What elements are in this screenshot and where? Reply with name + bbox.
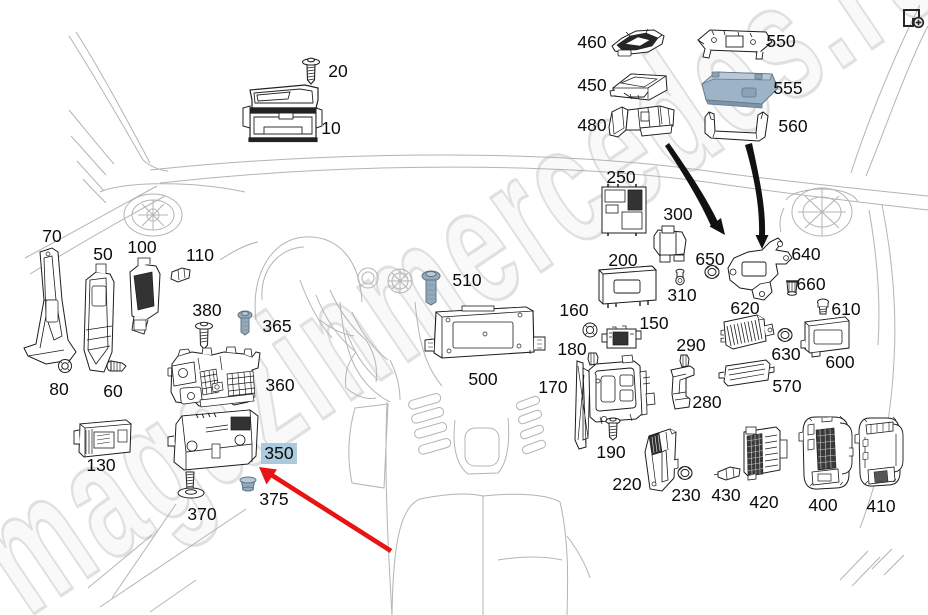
svg-text:170: 170 — [538, 377, 567, 397]
svg-text:10: 10 — [321, 118, 341, 138]
svg-text:220: 220 — [612, 474, 641, 494]
svg-text:570: 570 — [772, 376, 801, 396]
svg-text:150: 150 — [639, 313, 668, 333]
svg-text:660: 660 — [796, 274, 825, 294]
svg-text:640: 640 — [791, 244, 820, 264]
svg-text:480: 480 — [577, 115, 606, 135]
svg-text:250: 250 — [606, 167, 635, 187]
svg-text:375: 375 — [259, 489, 288, 509]
svg-text:290: 290 — [676, 335, 705, 355]
svg-text:600: 600 — [825, 352, 854, 372]
svg-text:130: 130 — [86, 455, 115, 475]
svg-text:430: 430 — [711, 485, 740, 505]
svg-text:20: 20 — [328, 61, 348, 81]
svg-text:550: 550 — [766, 31, 795, 51]
svg-text:300: 300 — [663, 204, 692, 224]
svg-text:100: 100 — [127, 237, 156, 257]
svg-text:280: 280 — [692, 392, 721, 412]
svg-text:180: 180 — [557, 339, 586, 359]
svg-text:310: 310 — [667, 285, 696, 305]
svg-text:350: 350 — [264, 443, 293, 463]
svg-text:365: 365 — [262, 316, 291, 336]
svg-text:630: 630 — [771, 344, 800, 364]
svg-text:360: 360 — [265, 375, 294, 395]
svg-text:160: 160 — [559, 300, 588, 320]
svg-text:500: 500 — [468, 369, 497, 389]
svg-text:370: 370 — [187, 504, 216, 524]
svg-text:450: 450 — [577, 75, 606, 95]
svg-text:510: 510 — [452, 270, 481, 290]
svg-text:380: 380 — [192, 300, 221, 320]
svg-text:230: 230 — [671, 485, 700, 505]
svg-text:650: 650 — [695, 249, 724, 269]
svg-text:420: 420 — [749, 492, 778, 512]
svg-text:610: 610 — [831, 299, 860, 319]
svg-text:60: 60 — [103, 381, 123, 401]
svg-text:410: 410 — [866, 496, 895, 516]
svg-text:50: 50 — [93, 244, 113, 264]
svg-text:70: 70 — [42, 226, 62, 246]
svg-text:200: 200 — [608, 250, 637, 270]
svg-text:190: 190 — [596, 442, 625, 462]
svg-text:555: 555 — [773, 78, 802, 98]
svg-text:110: 110 — [186, 245, 214, 265]
svg-text:560: 560 — [778, 116, 807, 136]
svg-text:460: 460 — [577, 32, 606, 52]
svg-text:80: 80 — [49, 379, 69, 399]
svg-text:400: 400 — [808, 495, 837, 515]
svg-text:620: 620 — [730, 298, 759, 318]
